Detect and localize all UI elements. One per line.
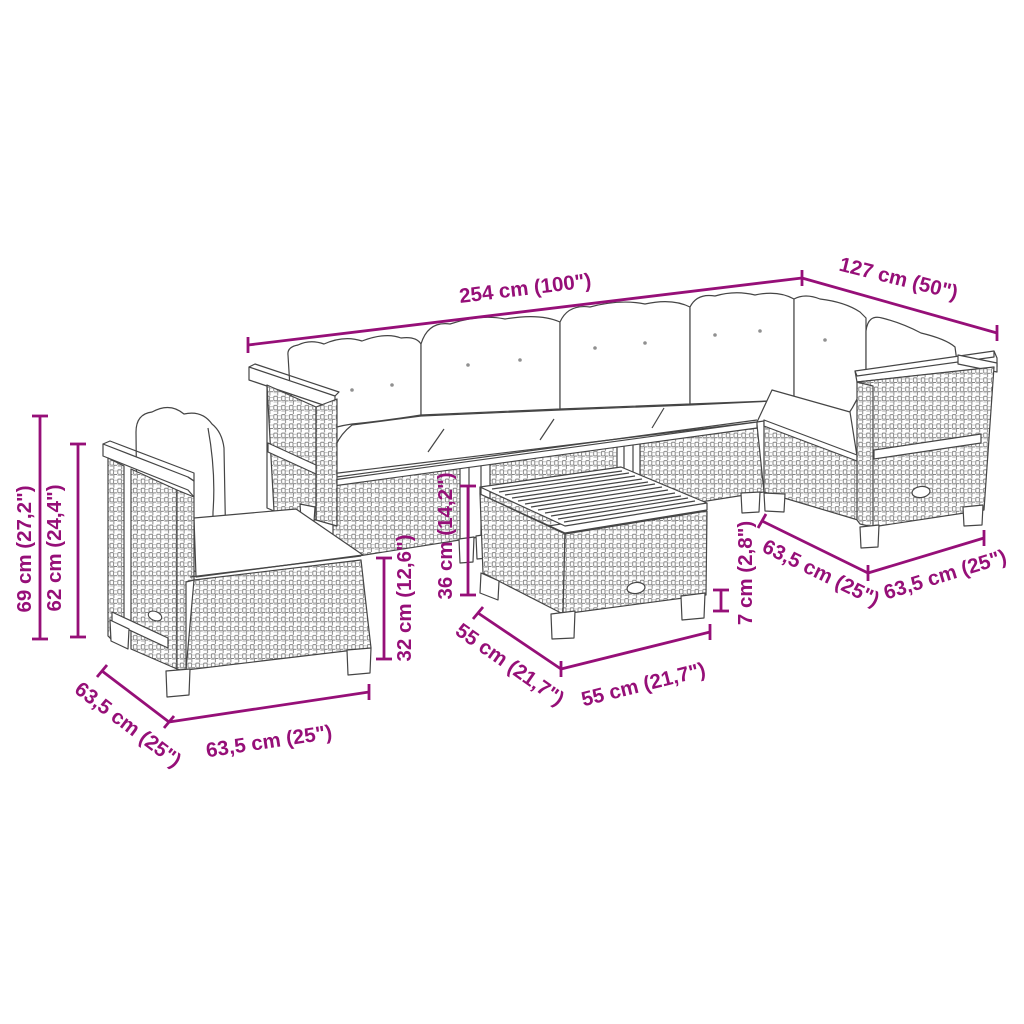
svg-text:7 cm (2,8"): 7 cm (2,8") <box>734 521 757 625</box>
svg-text:62 cm (24,4"): 62 cm (24,4") <box>43 484 66 611</box>
svg-text:32 cm (12,6"): 32 cm (12,6") <box>393 534 416 661</box>
svg-text:69 cm (27,2"): 69 cm (27,2") <box>13 485 36 612</box>
svg-text:36 cm (14,2"): 36 cm (14,2") <box>434 472 457 599</box>
